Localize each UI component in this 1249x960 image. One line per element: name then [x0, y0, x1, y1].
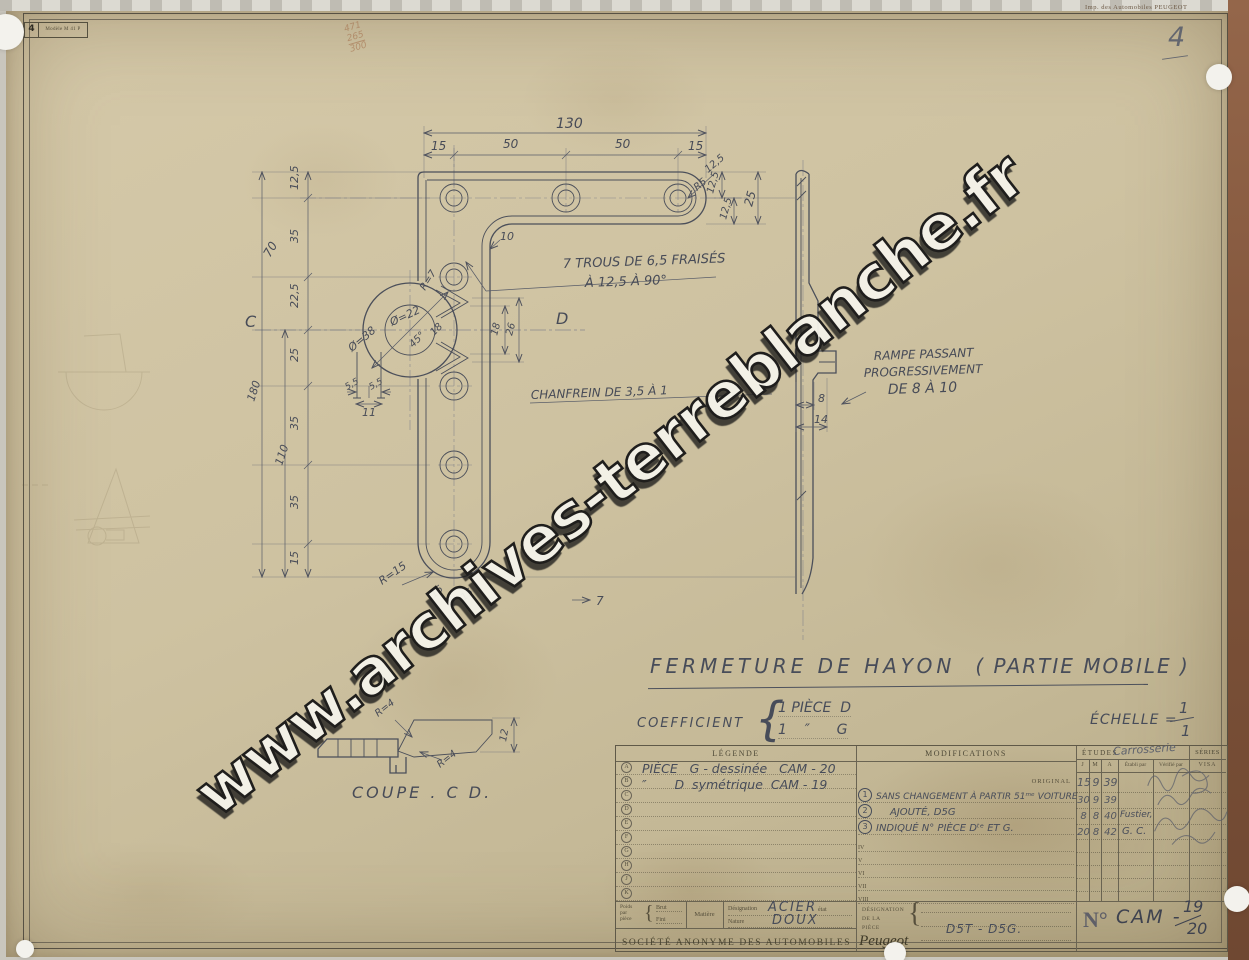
date-m: 8: [1090, 827, 1102, 838]
rule-line: [1076, 865, 1226, 866]
date-row-1: 30 9 39: [1077, 795, 1119, 806]
date-a: 39: [1102, 776, 1119, 789]
modification-roman-row: VII: [858, 878, 1074, 891]
rule-line: [1076, 824, 1226, 825]
original-label: ORIGINAL: [971, 778, 1071, 785]
scanner-edge-strip: [0, 0, 1249, 11]
cardboard-backing-strip: [1228, 0, 1249, 960]
modification-text-2: AJOUTÉ, D5G: [890, 807, 956, 818]
legend-key-h: H: [621, 860, 632, 871]
col-header-etabli: Établi par: [1118, 762, 1153, 768]
roman-vii: VII: [858, 884, 866, 890]
page-title-subtitle: ( PARTIE MOBILE ): [975, 654, 1189, 678]
legend-row: F: [616, 831, 856, 845]
etabli-row3: G. C.: [1122, 826, 1146, 837]
drawing-title-row: FERMETURE DE HAYON ( PARTIE MOBILE ): [650, 654, 1190, 678]
table-divider: [856, 746, 857, 951]
piece-l2: DE LA: [862, 915, 904, 924]
table-divider: [1076, 759, 1226, 760]
brut-label: Brut: [656, 905, 682, 912]
coefficient-label: COEFFICIENT: [637, 716, 744, 731]
modification-entry: 1 SANS CHANGEMENT À PARTIR 51ᵐᵉ VOITURE: [858, 786, 1074, 803]
date-a: 39: [1102, 795, 1119, 806]
modifications-header: MODIFICATIONS: [856, 746, 1076, 758]
legend-key-c: C: [621, 790, 632, 801]
modification-roman-row: VIII: [858, 891, 1074, 904]
legend-header: LÉGENDE: [616, 746, 856, 758]
coefficient-line2: 1 ″ G: [778, 722, 848, 739]
modification-entry: 2 AJOUTÉ, D5G: [858, 803, 1074, 819]
piece-l1: DÉSIGNATION: [862, 906, 904, 915]
table-divider: [1076, 772, 1226, 773]
printer-mark: Imp. des Automobiles PEUGEOT: [1085, 4, 1187, 11]
page-number-handwritten: 4: [1168, 22, 1185, 53]
date-j: 20: [1077, 827, 1090, 838]
coefficient-line1: 1 PIÈCE D: [778, 700, 851, 717]
scan-blob: [884, 942, 906, 960]
legend-entry-b: ″ D symétrique CAM - 19: [642, 777, 827, 792]
date-j: 30: [1077, 795, 1090, 806]
part-number-value: CAM -: [1116, 906, 1182, 928]
piece-value: D5T - D5G.: [946, 922, 1022, 936]
piece-brace: {: [908, 898, 921, 930]
rule-line: [1076, 878, 1226, 879]
title-block-table: LÉGENDE MODIFICATIONS ÉTUDES Carrosserie…: [615, 745, 1228, 952]
rule-line: [1076, 852, 1226, 853]
nature-label: Nature: [728, 919, 744, 925]
modification-roman-row: V: [858, 852, 1074, 865]
legend-key-f: F: [621, 832, 632, 843]
poids-brace: {: [644, 902, 654, 925]
rule-line: [1076, 839, 1226, 840]
scale-denominator: 1: [1181, 722, 1191, 740]
legend-row: H: [616, 859, 856, 873]
legend-entry-a: PIÈCE G - dessinée CAM - 20: [642, 761, 836, 776]
date-m: 9: [1090, 795, 1102, 806]
series-header: SÉRIES: [1189, 746, 1226, 756]
modification-num-3: 3: [858, 820, 872, 834]
company-line: SOCIÉTÉ ANONYME DES AUTOMOBILES Peugeot: [622, 932, 908, 950]
col-header-j: J: [1076, 762, 1089, 768]
matiere-label: Matière: [686, 911, 723, 918]
modification-num-1: 1: [858, 788, 872, 802]
piece-l3: PIÈCE: [862, 924, 904, 933]
model-stamp-label: Modèle M 41 P: [39, 23, 87, 37]
etat-label: état: [818, 907, 827, 913]
rule-line: [1076, 808, 1226, 809]
legend-row: G: [616, 845, 856, 859]
legend-row: D: [616, 803, 856, 817]
legend-key-e: E: [621, 818, 632, 829]
date-row-2: 8 8 40: [1077, 811, 1119, 822]
date-a: 42: [1102, 827, 1119, 838]
legend-key-g: G: [621, 846, 632, 857]
legend-key-b: B: [621, 776, 632, 787]
rule-line: [921, 940, 1071, 941]
part-number-prefix: N°: [1083, 907, 1108, 933]
date-row-original: 15 9 39: [1077, 776, 1119, 789]
rule-line: [728, 927, 852, 928]
date-j: 8: [1077, 811, 1090, 822]
modification-text-1: SANS CHANGEMENT À PARTIR 51ᵐᵉ VOITURE: [876, 792, 1078, 802]
designation-label: Désignation: [728, 906, 757, 912]
legend-key-k: K: [621, 888, 632, 899]
fini-label: Fini: [656, 917, 682, 924]
legend-key-a: A: [621, 762, 632, 773]
scale-label: ÉCHELLE =: [1090, 712, 1178, 728]
date-a: 40: [1102, 811, 1119, 822]
legend-row: J: [616, 873, 856, 887]
col-header-verifie: Vérifié par: [1153, 762, 1189, 768]
scan-blob: [1206, 64, 1232, 90]
rule-line: [1076, 891, 1226, 892]
roman-vi: VI: [858, 871, 864, 877]
rule-line: [921, 912, 1071, 913]
roman-iv: IV: [858, 845, 864, 851]
modification-roman-row: IV: [858, 839, 1074, 852]
scanned-blueprint-page: 4 Modèle M 41 P Imp. des Automobiles PEU…: [0, 0, 1249, 960]
poids-label: Poids par pièce: [620, 904, 632, 922]
col-header-m: M: [1089, 762, 1101, 768]
modification-num-2: 2: [858, 804, 872, 818]
table-divider: [616, 928, 856, 929]
scan-blob: [1224, 886, 1249, 912]
scan-blob: [16, 940, 34, 958]
etabli-row2: Fustier,: [1120, 810, 1153, 820]
modification-entry: 3 INDIQUÉ N° PIÈCE Dᵗᵉ ET G.: [858, 819, 1074, 835]
table-divider: [1153, 759, 1154, 901]
date-m: 9: [1090, 776, 1102, 789]
date-m: 8: [1090, 811, 1102, 822]
rule-line: [1076, 792, 1226, 793]
col-header-visa: VISA: [1189, 762, 1226, 768]
roman-viii: VIII: [858, 897, 868, 903]
col-header-a: A: [1101, 762, 1118, 768]
date-j: 15: [1077, 776, 1090, 789]
part-number-denominator: 20: [1187, 919, 1207, 938]
legend-key-d: D: [621, 804, 632, 815]
company-name: SOCIÉTÉ ANONYME DES AUTOMOBILES: [622, 938, 851, 948]
scale-numerator: 1: [1179, 699, 1189, 717]
piece-designation-label: DÉSIGNATION DE LA PIÈCE: [862, 906, 904, 933]
part-number-numerator: 19: [1183, 897, 1203, 916]
modification-text-3: INDIQUÉ N° PIÈCE Dᵗᵉ ET G.: [876, 823, 1014, 834]
date-row-3: 20 8 42: [1077, 827, 1119, 838]
roman-v: V: [858, 858, 862, 864]
modification-roman-row: VI: [858, 865, 1074, 878]
nature-value: DOUX: [772, 913, 819, 928]
poids-l3: pièce: [620, 916, 632, 922]
model-stamp-number: 4: [25, 23, 39, 37]
legend-key-j: J: [621, 874, 632, 885]
table-divider: [723, 901, 724, 928]
legend-row: E: [616, 817, 856, 831]
model-stamp-box: 4 Modèle M 41 P: [24, 22, 88, 38]
legend-row: K: [616, 887, 856, 901]
page-title: FERMETURE DE HAYON: [650, 654, 955, 678]
